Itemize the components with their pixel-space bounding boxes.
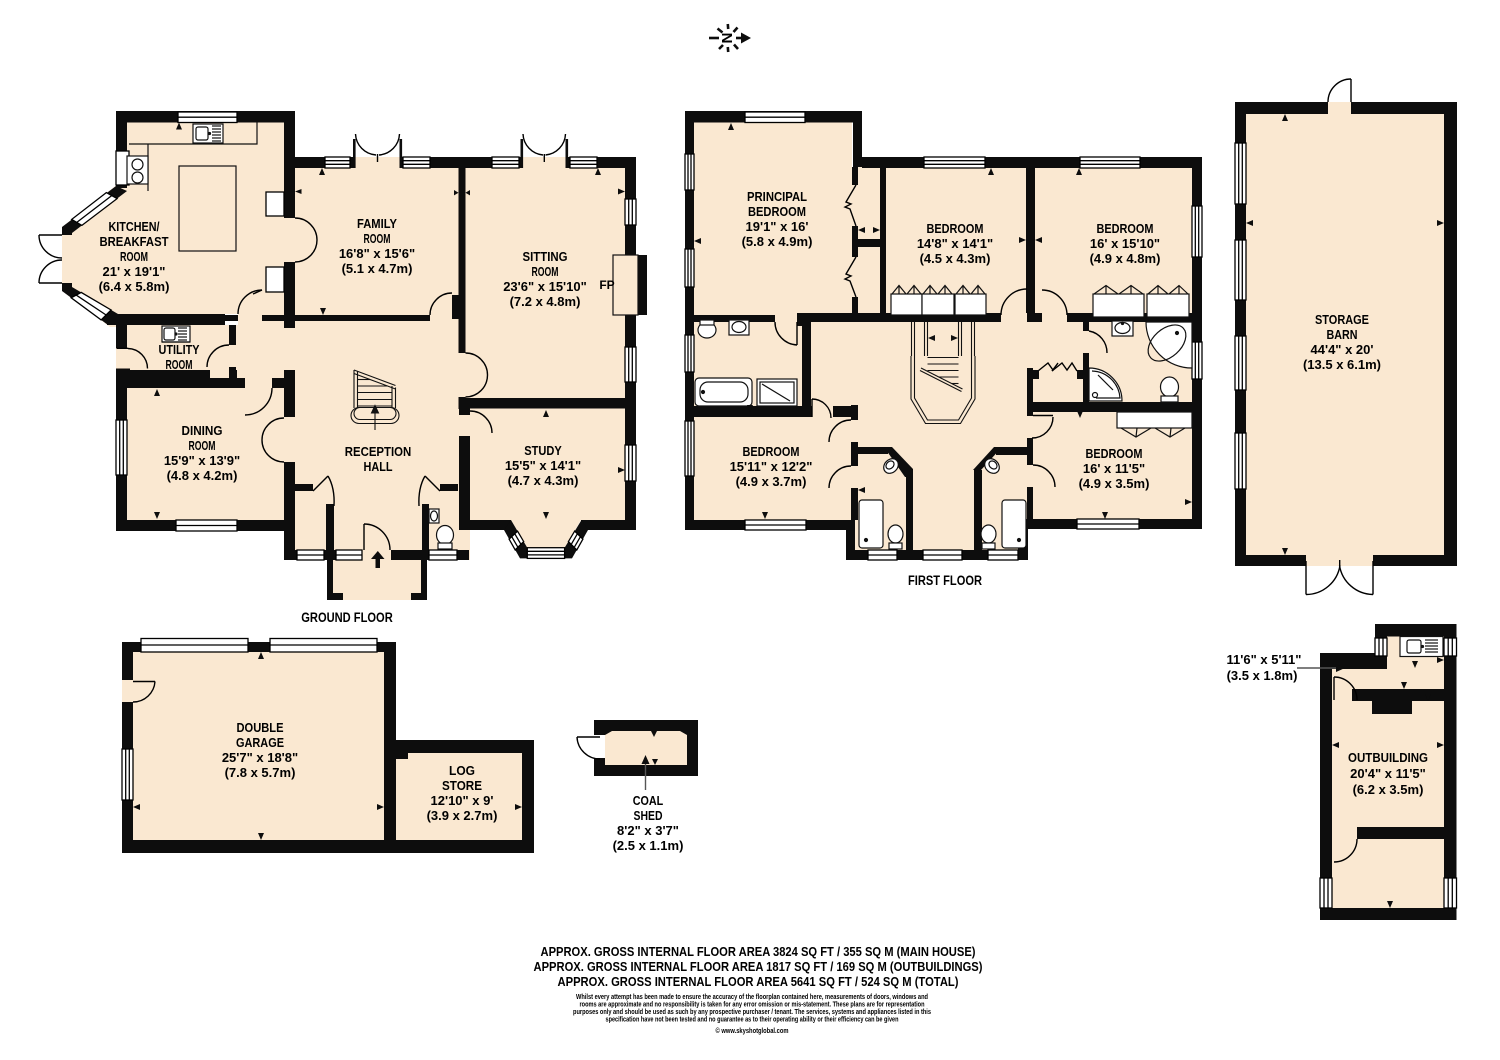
svg-text:(4.5 x 4.3m): (4.5 x 4.3m) — [920, 251, 991, 266]
svg-text:DINING: DINING — [182, 423, 223, 438]
svg-text:OUTBUILDING: OUTBUILDING — [1348, 750, 1428, 765]
svg-text:STUDY: STUDY — [524, 443, 562, 458]
svg-text:ROOM: ROOM — [120, 249, 148, 264]
svg-text:(3.9 x 2.7m): (3.9 x 2.7m) — [427, 808, 498, 823]
svg-text:specification have not been te: specification have not been tested and n… — [606, 1017, 899, 1024]
svg-text:FP: FP — [599, 278, 614, 292]
svg-text:15'5" x 14'1": 15'5" x 14'1" — [505, 458, 581, 473]
svg-text:rooms are approximate and no r: rooms are approximate and no responsibil… — [580, 1002, 925, 1009]
svg-text:14'8" x 14'1": 14'8" x 14'1" — [917, 236, 993, 251]
svg-text:BEDROOM: BEDROOM — [748, 204, 806, 219]
svg-text:8'2" x 3'7": 8'2" x 3'7" — [617, 823, 679, 838]
svg-text:15'11" x 12'2": 15'11" x 12'2" — [730, 459, 813, 474]
svg-text:BEDROOM: BEDROOM — [1086, 446, 1143, 461]
svg-text:APPROX. GROSS INTERNAL FLOOR A: APPROX. GROSS INTERNAL FLOOR AREA 5641 S… — [558, 974, 959, 989]
svg-text:(3.5 x 1.8m): (3.5 x 1.8m) — [1227, 668, 1298, 683]
svg-text:LOG: LOG — [449, 763, 475, 778]
svg-text:(13.5 x 6.1m): (13.5 x 6.1m) — [1303, 357, 1381, 372]
svg-text:21' x 19'1": 21' x 19'1" — [103, 264, 166, 279]
svg-text:23'6" x 15'10": 23'6" x 15'10" — [503, 279, 587, 294]
svg-text:BARN: BARN — [1327, 327, 1358, 342]
svg-text:20'4" x 11'5": 20'4" x 11'5" — [1350, 766, 1426, 781]
svg-text:Whilst every attempt has been: Whilst every attempt has been made to en… — [576, 994, 928, 1001]
svg-text:DOUBLE: DOUBLE — [237, 720, 284, 735]
svg-text:BEDROOM: BEDROOM — [1097, 221, 1154, 236]
svg-text:KITCHEN/: KITCHEN/ — [109, 219, 160, 234]
svg-text:SITTING: SITTING — [523, 249, 568, 264]
svg-text:ROOM: ROOM — [166, 357, 193, 372]
svg-text:APPROX. GROSS INTERNAL FLOOR A: APPROX. GROSS INTERNAL FLOOR AREA 1817 S… — [534, 959, 983, 974]
svg-text:RECEPTION: RECEPTION — [345, 444, 412, 459]
svg-text:(7.2 x 4.8m): (7.2 x 4.8m) — [510, 294, 581, 309]
svg-text:ROOM: ROOM — [532, 264, 559, 279]
svg-text:(4.8 x 4.2m): (4.8 x 4.2m) — [167, 468, 238, 483]
svg-text:FAMILY: FAMILY — [357, 216, 397, 231]
svg-text:16' x 15'10": 16' x 15'10" — [1090, 236, 1160, 251]
svg-text:15'9" x 13'9": 15'9" x 13'9" — [164, 453, 240, 468]
svg-text:(5.1 x 4.7m): (5.1 x 4.7m) — [342, 261, 413, 276]
svg-text:16' x 11'5": 16' x 11'5" — [1083, 461, 1145, 476]
svg-text:HALL: HALL — [364, 459, 393, 474]
svg-text:purposes only and should be u: purposes only and should be used as such… — [573, 1009, 931, 1016]
svg-text:GROUND FLOOR: GROUND FLOOR — [301, 610, 393, 625]
svg-text:(4.9 x 3.7m): (4.9 x 3.7m) — [736, 474, 807, 489]
svg-text:BREAKFAST: BREAKFAST — [100, 234, 169, 249]
svg-text:(4.9 x 4.8m): (4.9 x 4.8m) — [1090, 251, 1161, 266]
svg-text:(7.8 x 5.7m): (7.8 x 5.7m) — [225, 765, 296, 780]
svg-text:FIRST FLOOR: FIRST FLOOR — [908, 573, 982, 588]
svg-text:11'6" x 5'11": 11'6" x 5'11" — [1227, 652, 1302, 667]
svg-text:(2.5 x 1.1m): (2.5 x 1.1m) — [613, 838, 684, 853]
svg-text:16'8" x 15'6": 16'8" x 15'6" — [339, 246, 415, 261]
svg-text:© www.skyshotglobal.com: © www.skyshotglobal.com — [716, 1027, 789, 1035]
svg-text:PRINCIPAL: PRINCIPAL — [747, 189, 807, 204]
svg-text:ROOM: ROOM — [364, 231, 391, 246]
svg-text:(5.8 x 4.9m): (5.8 x 4.9m) — [742, 234, 813, 249]
svg-text:BEDROOM: BEDROOM — [743, 444, 800, 459]
svg-text:COAL: COAL — [633, 793, 664, 808]
svg-text:SHED: SHED — [634, 808, 663, 823]
svg-text:44'4" x 20': 44'4" x 20' — [1311, 342, 1374, 357]
svg-text:12'10" x 9': 12'10" x 9' — [431, 793, 494, 808]
svg-text:(6.2 x 3.5m): (6.2 x 3.5m) — [1353, 782, 1424, 797]
svg-text:19'1" x 16': 19'1" x 16' — [746, 219, 809, 234]
svg-text:25'7" x 18'8": 25'7" x 18'8" — [222, 750, 298, 765]
svg-text:ROOM: ROOM — [189, 438, 216, 453]
svg-text:(4.9 x 3.5m): (4.9 x 3.5m) — [1079, 476, 1150, 491]
svg-text:(4.7 x 4.3m): (4.7 x 4.3m) — [508, 473, 579, 488]
svg-text:GARAGE: GARAGE — [236, 735, 284, 750]
svg-text:N: N — [718, 33, 735, 44]
svg-text:(6.4 x 5.8m): (6.4 x 5.8m) — [99, 279, 170, 294]
svg-text:UTILITY: UTILITY — [159, 342, 200, 357]
svg-text:APPROX. GROSS INTERNAL FLOOR A: APPROX. GROSS INTERNAL FLOOR AREA 3824 S… — [541, 944, 976, 959]
svg-text:BEDROOM: BEDROOM — [927, 221, 984, 236]
svg-text:STORE: STORE — [442, 778, 482, 793]
svg-text:STORAGE: STORAGE — [1315, 312, 1369, 327]
